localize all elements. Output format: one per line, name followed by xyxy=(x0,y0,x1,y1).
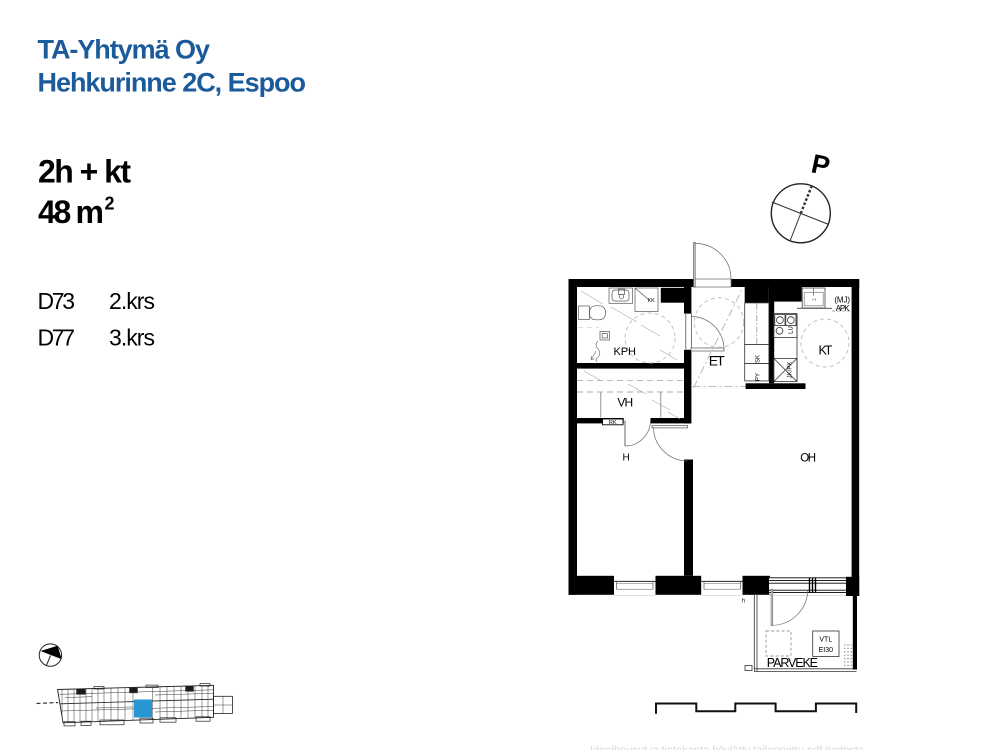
svg-text:P: P xyxy=(809,149,833,182)
svg-text:H: H xyxy=(623,452,630,463)
svg-text:JK/PK: JK/PK xyxy=(788,362,794,379)
svg-text:2: 2 xyxy=(105,194,115,214)
svg-text:h: h xyxy=(742,598,746,605)
svg-text:LU: LU xyxy=(789,326,795,334)
svg-text:48 m: 48 m xyxy=(38,194,104,230)
svg-text:KT: KT xyxy=(819,343,833,357)
svg-text:Idealhousut ja tietokanta höyl: Idealhousut ja tietokanta höylätty talle… xyxy=(590,745,864,750)
svg-text:ET: ET xyxy=(709,352,725,368)
svg-text:OH: OH xyxy=(800,453,816,465)
svg-text:TA-Yhtymä Oy: TA-Yhtymä Oy xyxy=(38,35,211,65)
svg-text:D73: D73 xyxy=(38,288,76,314)
svg-text:Hehkurinne 2C, Espoo: Hehkurinne 2C, Espoo xyxy=(38,68,307,98)
svg-text:VTL: VTL xyxy=(819,637,832,644)
svg-text:EI30: EI30 xyxy=(819,647,834,654)
svg-text:SK: SK xyxy=(756,355,762,363)
svg-text:APK: APK xyxy=(836,304,851,313)
svg-text:2h + kt: 2h + kt xyxy=(38,154,131,190)
svg-text:PARVEKE: PARVEKE xyxy=(767,656,818,670)
svg-text:VH: VH xyxy=(617,396,633,410)
svg-text:PY: PY xyxy=(756,373,762,381)
svg-text:RK: RK xyxy=(609,420,617,426)
svg-text:KK: KK xyxy=(648,298,656,304)
svg-text:3.krs: 3.krs xyxy=(109,325,155,351)
svg-text:KPH: KPH xyxy=(614,346,637,358)
svg-text:2.krs: 2.krs xyxy=(109,288,155,314)
svg-text:D77: D77 xyxy=(38,325,76,351)
